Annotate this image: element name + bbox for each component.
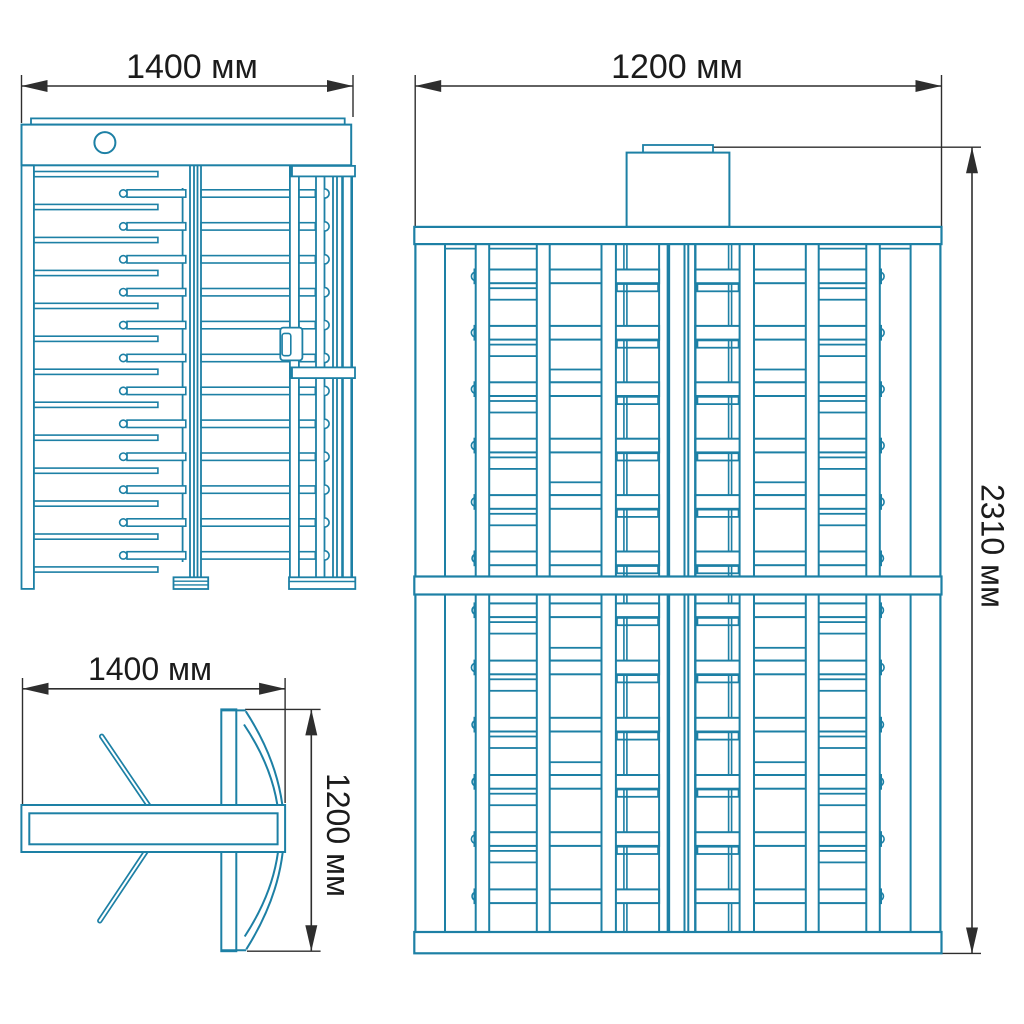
svg-text:2310 мм: 2310 мм xyxy=(975,484,1011,608)
svg-text:1200 мм: 1200 мм xyxy=(611,48,743,86)
svg-text:1400 мм: 1400 мм xyxy=(126,48,258,86)
svg-text:1400 мм: 1400 мм xyxy=(88,651,212,687)
svg-text:1200 мм: 1200 мм xyxy=(320,773,356,897)
